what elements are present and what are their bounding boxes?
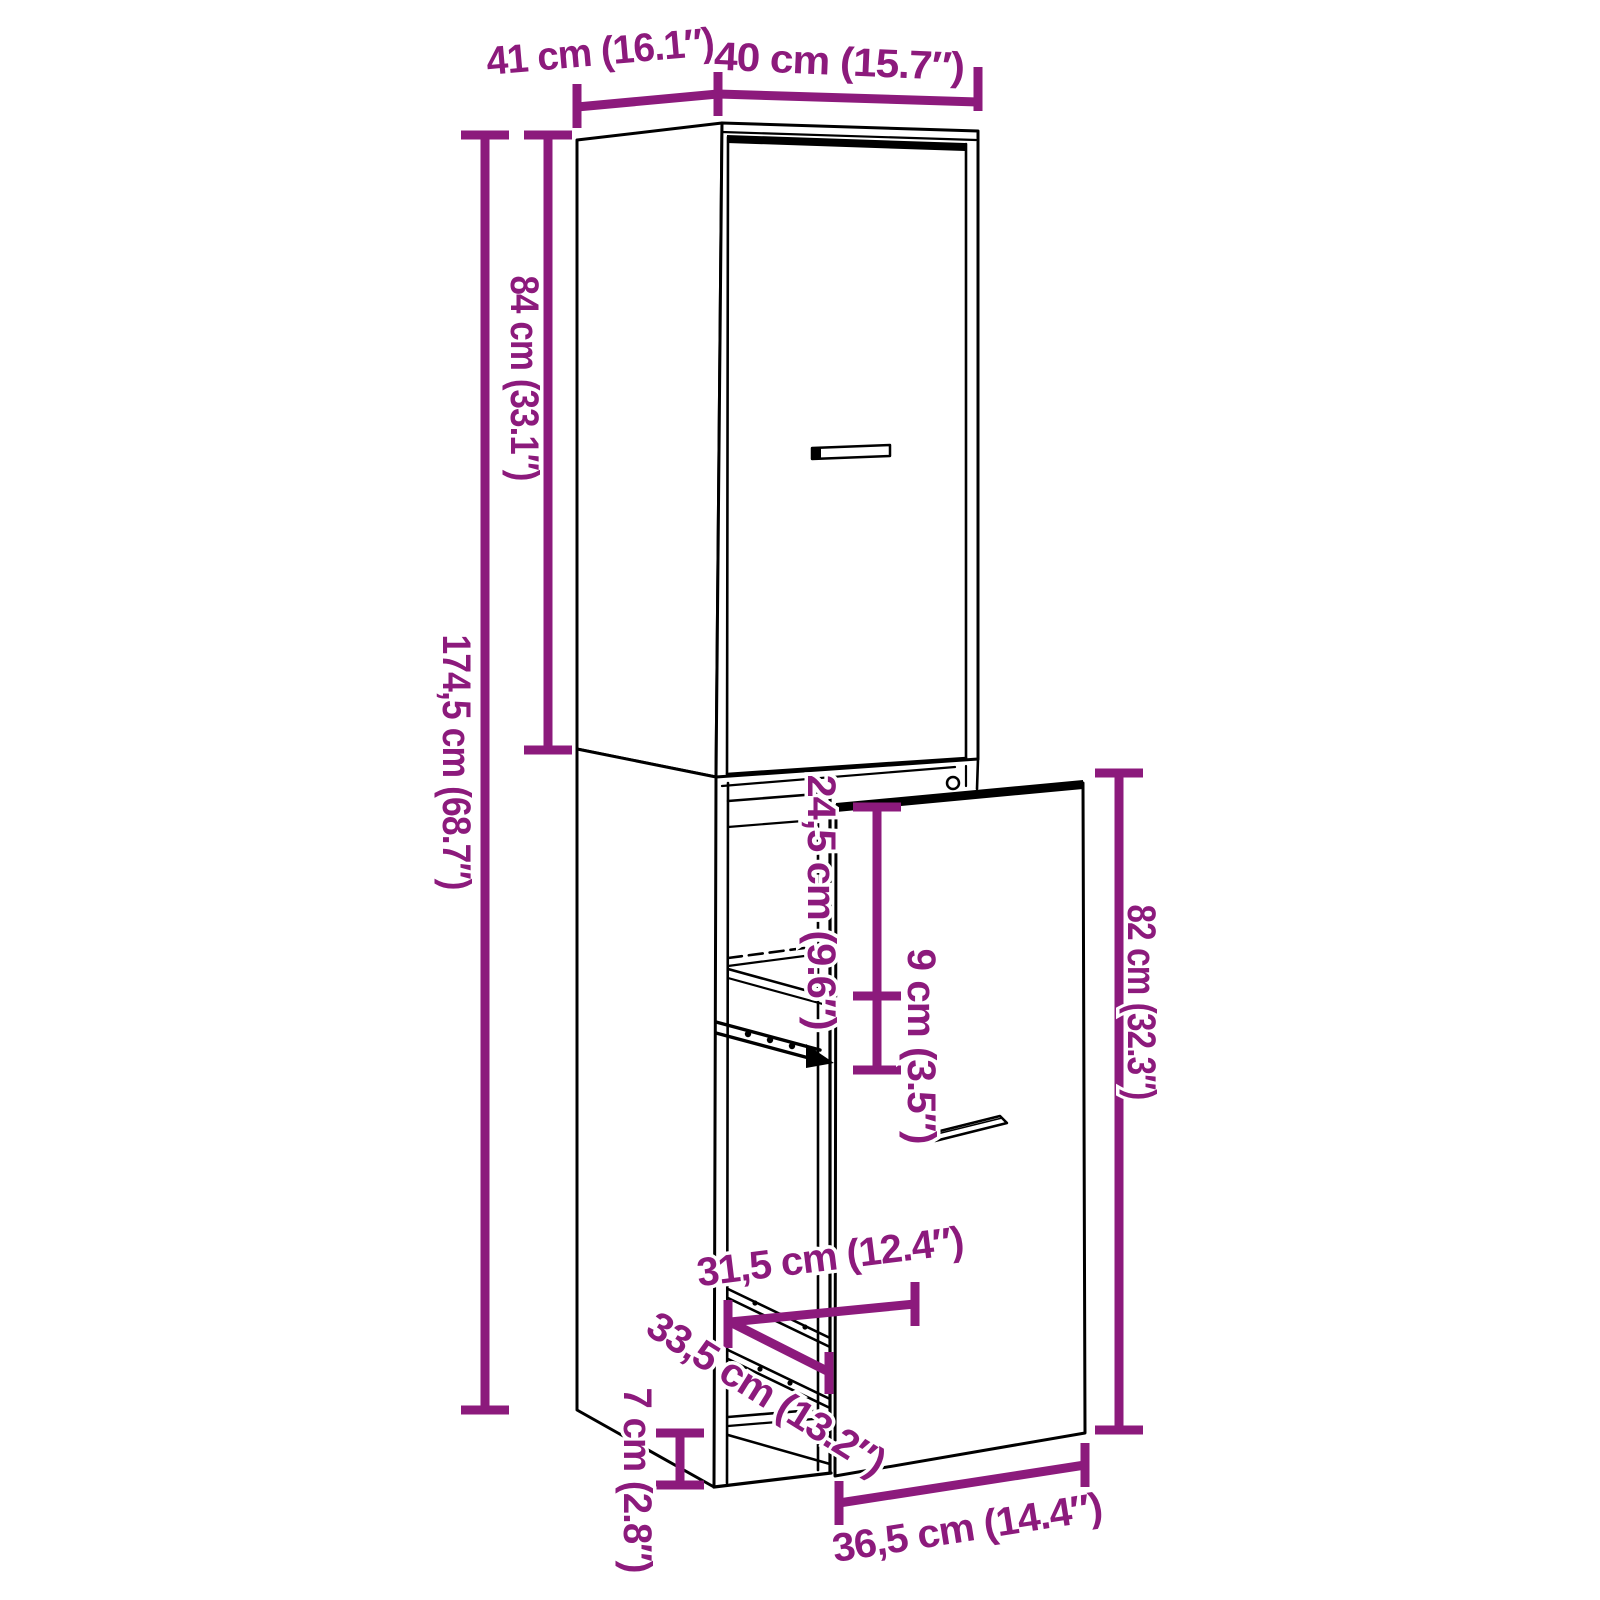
dim-top-depth-line <box>577 72 718 128</box>
diagram-canvas: 41 cm (16.1″) 40 cm (15.7″) 84 cm (33.1″… <box>0 0 1600 1600</box>
door-handle <box>812 445 890 459</box>
upper-cabinet <box>577 123 978 777</box>
dim-top-depth-label: 41 cm (16.1″) <box>485 20 716 84</box>
dim-upper-height-label: 84 cm (33.1″) <box>502 276 546 481</box>
door-left-edge <box>727 137 728 774</box>
lower-left-side-panel <box>577 749 716 1487</box>
dim-drawer-top-section-label: 24,5 cm (9.6″) <box>799 775 843 1030</box>
opening-interior-top <box>728 821 803 827</box>
upper-left-side-panel <box>577 123 722 777</box>
lower-right-corner-edge <box>977 759 978 789</box>
cam-lock-hole <box>947 777 959 789</box>
dim-drawer-mid-section-label: 9 cm (3.5″) <box>899 949 943 1144</box>
dim-plinth-height-label: 7 cm (2.8″) <box>615 1388 659 1573</box>
dim-total-height-label: 174,5 cm (68.7″) <box>434 635 478 890</box>
dim-drawer-front-height-line <box>1095 773 1143 1430</box>
dimension-diagram: 41 cm (16.1″) 40 cm (15.7″) 84 cm (33.1″… <box>0 0 1600 1600</box>
dim-top-width-label: 40 cm (15.7″) <box>713 35 965 90</box>
dim-drawer-front-height-label: 82 cm (32.3″) <box>1119 905 1163 1100</box>
lower-bottom-front-edge <box>714 1473 831 1487</box>
